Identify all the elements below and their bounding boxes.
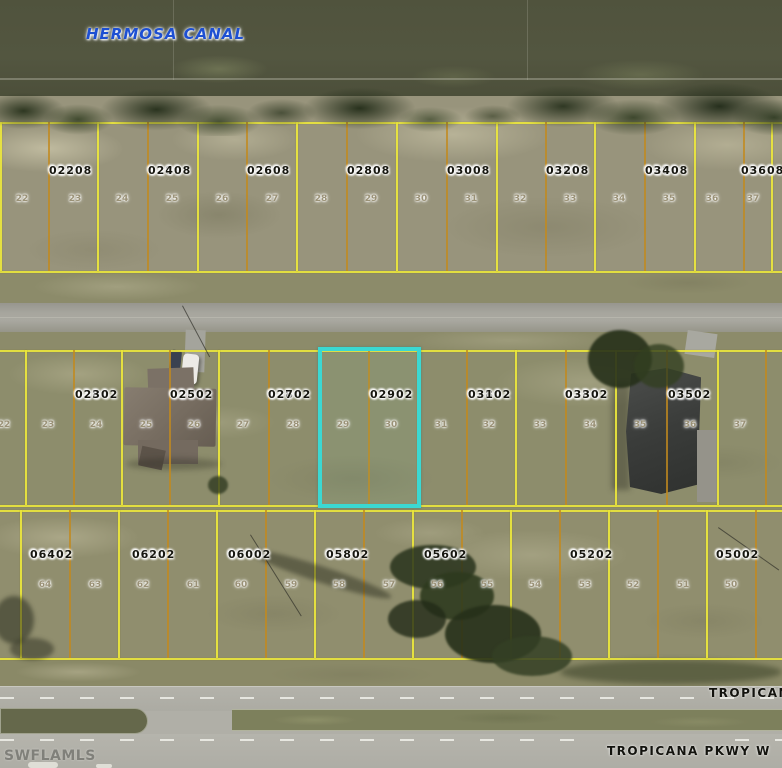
lot-number: 24	[90, 420, 103, 430]
lot-number: 56	[431, 580, 444, 590]
lot-number: 36	[706, 194, 719, 204]
canal-name-label: HERMOSA CANAL	[86, 25, 245, 43]
lot-number: 35	[663, 194, 676, 204]
mls-watermark: SWFLAMLS	[4, 748, 96, 764]
lot-number: 53	[579, 580, 592, 590]
lot-number: 37	[734, 420, 747, 430]
lot-number: 31	[435, 420, 448, 430]
street-name-label-bottom: TROPICANA PKWY W	[607, 744, 771, 758]
lot-number: 34	[584, 420, 597, 430]
lot-number: 33	[534, 420, 547, 430]
lot-number: 25	[166, 194, 179, 204]
lot-number: 32	[514, 194, 527, 204]
lot-number: 29	[337, 420, 350, 430]
lot-number: 61	[187, 580, 200, 590]
lot-number: 54	[529, 580, 542, 590]
lot-number: 50	[725, 580, 738, 590]
lot-number: 52	[627, 580, 640, 590]
lot-number: 29	[365, 194, 378, 204]
lot-number: 26	[188, 420, 201, 430]
lot-number: 22	[0, 420, 10, 430]
lot-number: 27	[266, 194, 279, 204]
aerial-parcel-map: 0289802202223028980240242502898026026270…	[0, 0, 782, 768]
lot-number: 22	[16, 194, 29, 204]
lot-number: 60	[235, 580, 248, 590]
lot-number: 33	[564, 194, 577, 204]
lot-number: 30	[415, 194, 428, 204]
lot-number: 51	[677, 580, 690, 590]
lot-number: 26	[216, 194, 229, 204]
lot-number: 34	[613, 194, 626, 204]
lot-number: 35	[634, 420, 647, 430]
lot-number: 25	[140, 420, 153, 430]
lot-number: 36	[684, 420, 697, 430]
lot-number: 31	[465, 194, 478, 204]
lot-number: 63	[89, 580, 102, 590]
lot-number: 57	[383, 580, 396, 590]
lot-number: 59	[285, 580, 298, 590]
lot-number: 30	[385, 420, 398, 430]
street-name-label-right: TROPICANA PKWY W	[709, 686, 782, 700]
lot-number: 23	[42, 420, 55, 430]
lot-number: 62	[137, 580, 150, 590]
lot-number: 28	[315, 194, 328, 204]
lot-number: 28	[287, 420, 300, 430]
lot-number: 27	[237, 420, 250, 430]
lot-number: 37	[747, 194, 760, 204]
lot-number: 32	[483, 420, 496, 430]
parcel-labels-layer: 0289802202223028980240242502898026026270…	[0, 0, 782, 768]
lot-number: 24	[116, 194, 129, 204]
lot-number: 58	[333, 580, 346, 590]
lot-number: 64	[39, 580, 52, 590]
lot-number: 23	[69, 194, 82, 204]
lot-number: 55	[481, 580, 494, 590]
